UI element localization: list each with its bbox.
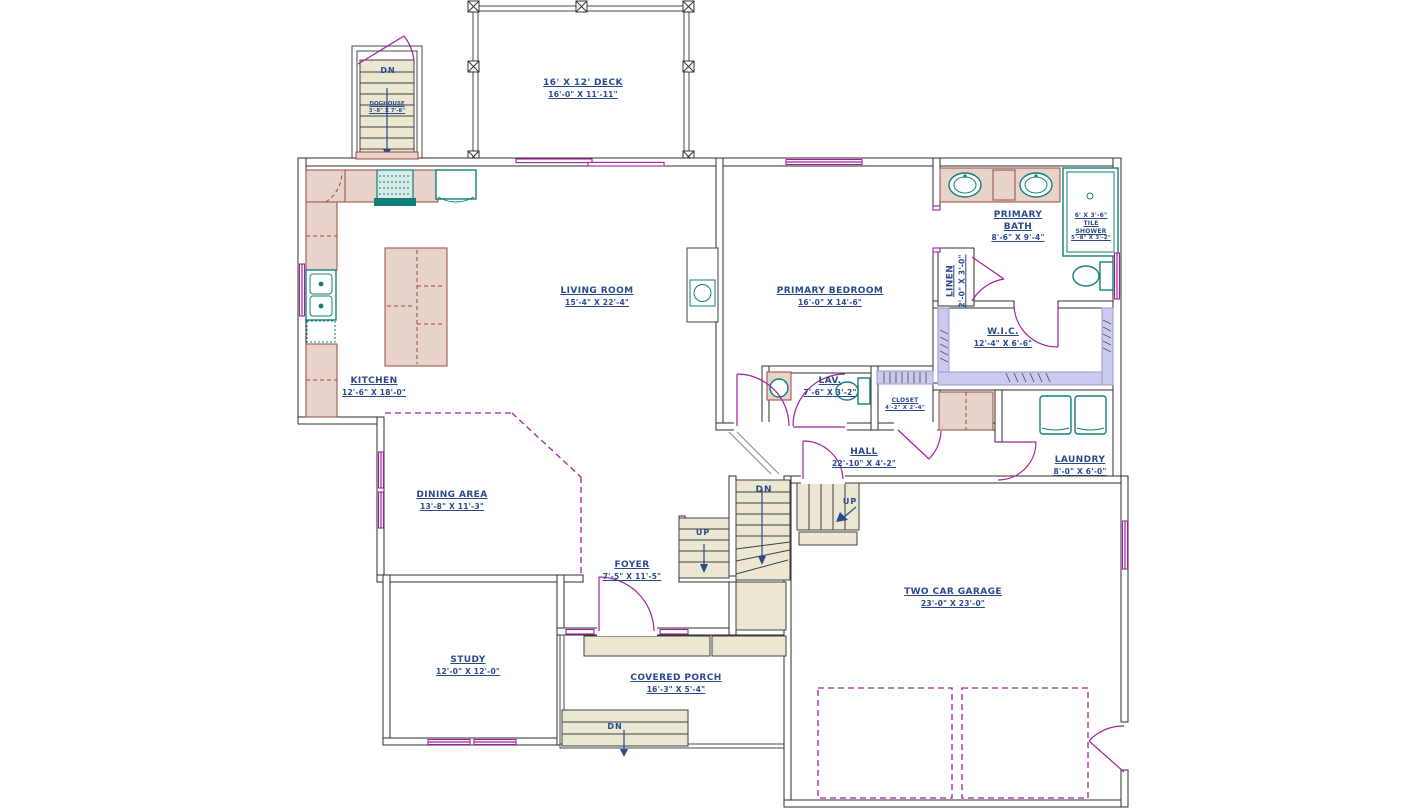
garage-side-door [1089, 726, 1124, 772]
hall-label: HALL22'-10" X 4'-2" [832, 447, 896, 468]
closet-label: CLOSET4'-2" X 2'-4" [885, 397, 925, 412]
deck-slider-window [588, 162, 664, 166]
bedroom-window [786, 160, 862, 165]
wic-label: W.I.C.12'-4" X 6'-6" [974, 327, 1033, 348]
dining-window [379, 492, 384, 528]
dryer [1075, 396, 1106, 434]
linen-label: LINEN2'-0" X 3'-0" [945, 254, 966, 307]
floor-plan-page: { "rooms": { "deck": {"name": "16' X 12'… [0, 0, 1419, 811]
ceiling-break-lines [729, 432, 779, 474]
front-sidelite [566, 630, 594, 635]
washer [1040, 396, 1071, 434]
deck-stair-dn-label: DN [380, 66, 395, 75]
kitchen-sink [306, 270, 336, 320]
dishwasher [307, 321, 335, 342]
kitchen-island [385, 248, 447, 366]
garage-door-outlines [818, 688, 1088, 798]
understair-storage [736, 582, 786, 630]
bath-toilet [1073, 262, 1113, 290]
front-door [597, 577, 657, 636]
bath-vanity [940, 168, 1060, 202]
study-window [428, 740, 470, 745]
garage-window [1123, 521, 1128, 569]
stairs-basement-up [679, 518, 729, 578]
basement-stair-up-label: UP [696, 528, 710, 537]
bath-linen-door [972, 257, 1004, 301]
windows [300, 159, 1128, 745]
kitchen-window [300, 264, 305, 316]
laundry-cabinet [939, 392, 993, 430]
covered-porch-label: COVERED PORCH16'-3" X 5'-4" [630, 673, 721, 694]
primary-bath-label: PRIMARY BATH8'-6" X 9'-4" [986, 210, 1050, 243]
laundry-label: LAUNDRY8'-0" X 6'-0" [1053, 455, 1106, 476]
doors [597, 257, 1124, 772]
laundry-door [998, 442, 1036, 480]
garage-label: TWO CAR GARAGE23'-0" X 23'-0" [904, 587, 1002, 608]
refrigerator [436, 170, 476, 202]
dining-area-label: DINING AREA13'-8" X 11'-3" [416, 490, 487, 511]
deck-stairs-label: DOGHOUSE3'-8" X 7'-8" [369, 101, 405, 115]
top-wall-landing-pad [356, 152, 418, 159]
stairs-garage-up [797, 483, 859, 545]
study-window [474, 740, 516, 745]
study-label: STUDY12'-0" X 12'-0" [436, 655, 500, 676]
main-stair-dn-label: DN [755, 485, 772, 495]
cooktop [374, 170, 416, 206]
bath-window [1115, 253, 1120, 299]
bath-opening-jamb [933, 248, 940, 252]
hall-closet-shelf [877, 371, 933, 384]
lav-label: LAV.7'-6" X 3'-2" [803, 376, 856, 397]
porch-landing [584, 636, 786, 656]
closet-door [894, 422, 941, 459]
dining-window [379, 452, 384, 488]
garage-stair-up-label: UP [843, 497, 857, 506]
deck-label: 16' X 12' DECK16'-0" X 11'-11" [543, 78, 623, 99]
foyer-label: FOYER7'-5" X 11'-5" [603, 560, 662, 581]
stairs-main-down [736, 480, 790, 580]
porch-stair-dn-label: DN [607, 722, 622, 731]
tile-shower-label: 6' X 3'-6" TILE SHOWER5'-8" X 3'-2" [1067, 212, 1115, 243]
porch-steps [562, 710, 688, 757]
fireplace [687, 248, 718, 322]
kitchen-label: KITCHEN12'-6" X 18'-0" [342, 376, 406, 397]
front-sidelite [660, 630, 688, 635]
primary-bedroom-label: PRIMARY BEDROOM16'-0" X 14'-6" [777, 286, 884, 307]
deck-slider-window [516, 159, 592, 163]
bath-opening-jamb [933, 206, 940, 210]
living-room-label: LIVING ROOM15'-4" X 22'-4" [560, 286, 633, 307]
